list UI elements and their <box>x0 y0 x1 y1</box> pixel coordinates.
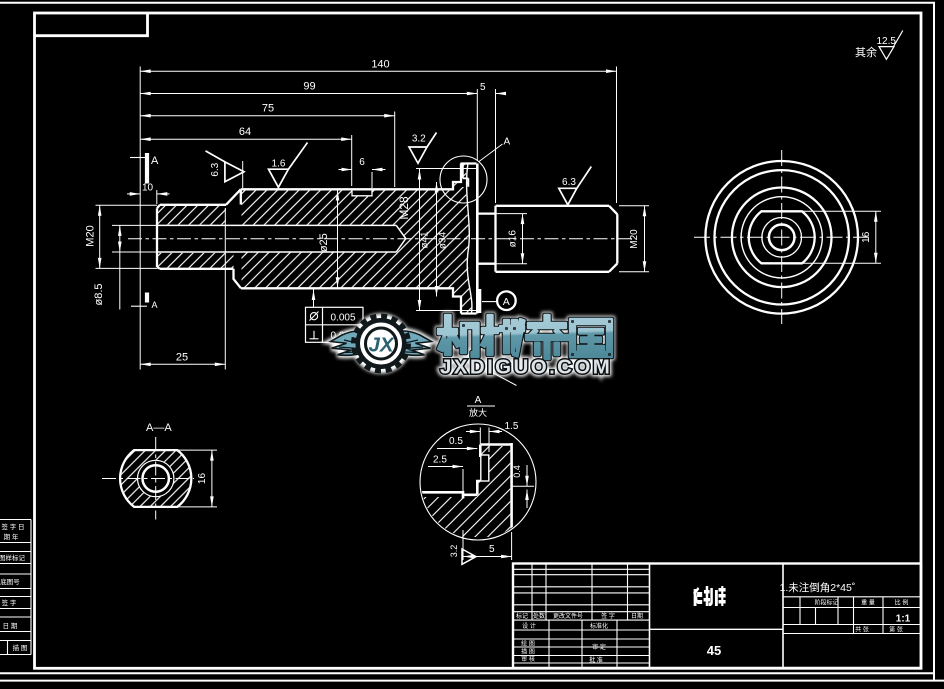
svg-text:1.未注倒角2*45˚: 1.未注倒角2*45˚ <box>780 581 856 594</box>
svg-text:A: A <box>152 300 158 310</box>
svg-text:期 年: 期 年 <box>4 532 19 541</box>
svg-text:第 张: 第 张 <box>889 626 903 634</box>
svg-text:标准化: 标准化 <box>590 622 608 630</box>
svg-text:0.5: 0.5 <box>449 436 463 447</box>
svg-text:5: 5 <box>480 82 486 93</box>
svg-text:阶段标记: 阶段标记 <box>814 599 838 607</box>
svg-text:图样标记: 图样标记 <box>0 553 26 562</box>
svg-text:ø34: ø34 <box>438 231 449 249</box>
svg-text:99: 99 <box>303 81 315 93</box>
svg-text:3.2: 3.2 <box>449 545 459 558</box>
svg-text:比 例: 比 例 <box>895 599 909 607</box>
svg-text:M20: M20 <box>85 225 97 246</box>
svg-text:ø16: ø16 <box>508 230 519 248</box>
svg-text:日期: 日期 <box>631 612 643 620</box>
svg-text:1.6: 1.6 <box>272 159 286 170</box>
svg-text:ø41: ø41 <box>420 231 431 249</box>
svg-text:日 期: 日 期 <box>3 622 18 630</box>
svg-text:描 图: 描 图 <box>13 643 28 652</box>
svg-text:75: 75 <box>262 103 274 115</box>
svg-text:描 图: 描 图 <box>521 648 535 656</box>
svg-text:1.5: 1.5 <box>505 421 519 432</box>
svg-text:6.3: 6.3 <box>210 162 221 176</box>
svg-text:A—A: A—A <box>146 422 172 434</box>
svg-text:其余: 其余 <box>855 45 877 59</box>
svg-text:0.4: 0.4 <box>512 465 522 478</box>
svg-text:45: 45 <box>707 643 721 658</box>
svg-text:6: 6 <box>359 157 365 168</box>
svg-text:3.2: 3.2 <box>412 134 426 145</box>
svg-text:签 字: 签 字 <box>2 598 17 607</box>
svg-text:2.5: 2.5 <box>433 455 447 466</box>
svg-text:1:1: 1:1 <box>896 614 911 625</box>
svg-text:审 核: 审 核 <box>521 655 535 663</box>
svg-text:10: 10 <box>142 183 154 194</box>
svg-text:设 计: 设 计 <box>522 622 536 630</box>
svg-text:12.5: 12.5 <box>877 36 897 47</box>
svg-text:A: A <box>151 155 159 167</box>
svg-text:140: 140 <box>371 59 389 71</box>
svg-text:绘 图: 绘 图 <box>521 640 535 648</box>
svg-text:16: 16 <box>197 473 208 485</box>
svg-text:25: 25 <box>176 352 188 364</box>
svg-text:签 字: 签 字 <box>601 612 615 620</box>
svg-text:M28: M28 <box>397 196 411 220</box>
svg-text:标记: 标记 <box>516 612 528 620</box>
svg-text:JXDIGUO.COM: JXDIGUO.COM <box>440 356 612 379</box>
svg-text:A: A <box>503 296 510 308</box>
svg-text:ø8.5: ø8.5 <box>93 283 105 305</box>
svg-text:A: A <box>475 395 482 406</box>
svg-text:放大: 放大 <box>469 407 487 418</box>
svg-text:重 量: 重 量 <box>861 599 875 607</box>
svg-text:6.3: 6.3 <box>562 177 576 188</box>
svg-text:共 张: 共 张 <box>855 626 869 634</box>
svg-text:0.005: 0.005 <box>330 313 355 324</box>
svg-text:批 准: 批 准 <box>589 656 603 664</box>
svg-text:M20: M20 <box>629 229 640 249</box>
svg-text:签 字 日: 签 字 日 <box>1 522 24 531</box>
svg-text:A: A <box>504 137 511 148</box>
svg-text:处数: 处数 <box>533 612 545 620</box>
svg-text:底图号: 底图号 <box>0 577 20 586</box>
svg-text:5: 5 <box>489 544 495 555</box>
svg-text:16: 16 <box>861 231 872 243</box>
svg-text:更改文件号: 更改文件号 <box>553 612 583 620</box>
svg-text:64: 64 <box>239 126 251 138</box>
svg-text:审 定: 审 定 <box>592 643 606 651</box>
svg-text:JX: JX <box>368 334 394 357</box>
svg-text:ø25: ø25 <box>318 233 330 252</box>
